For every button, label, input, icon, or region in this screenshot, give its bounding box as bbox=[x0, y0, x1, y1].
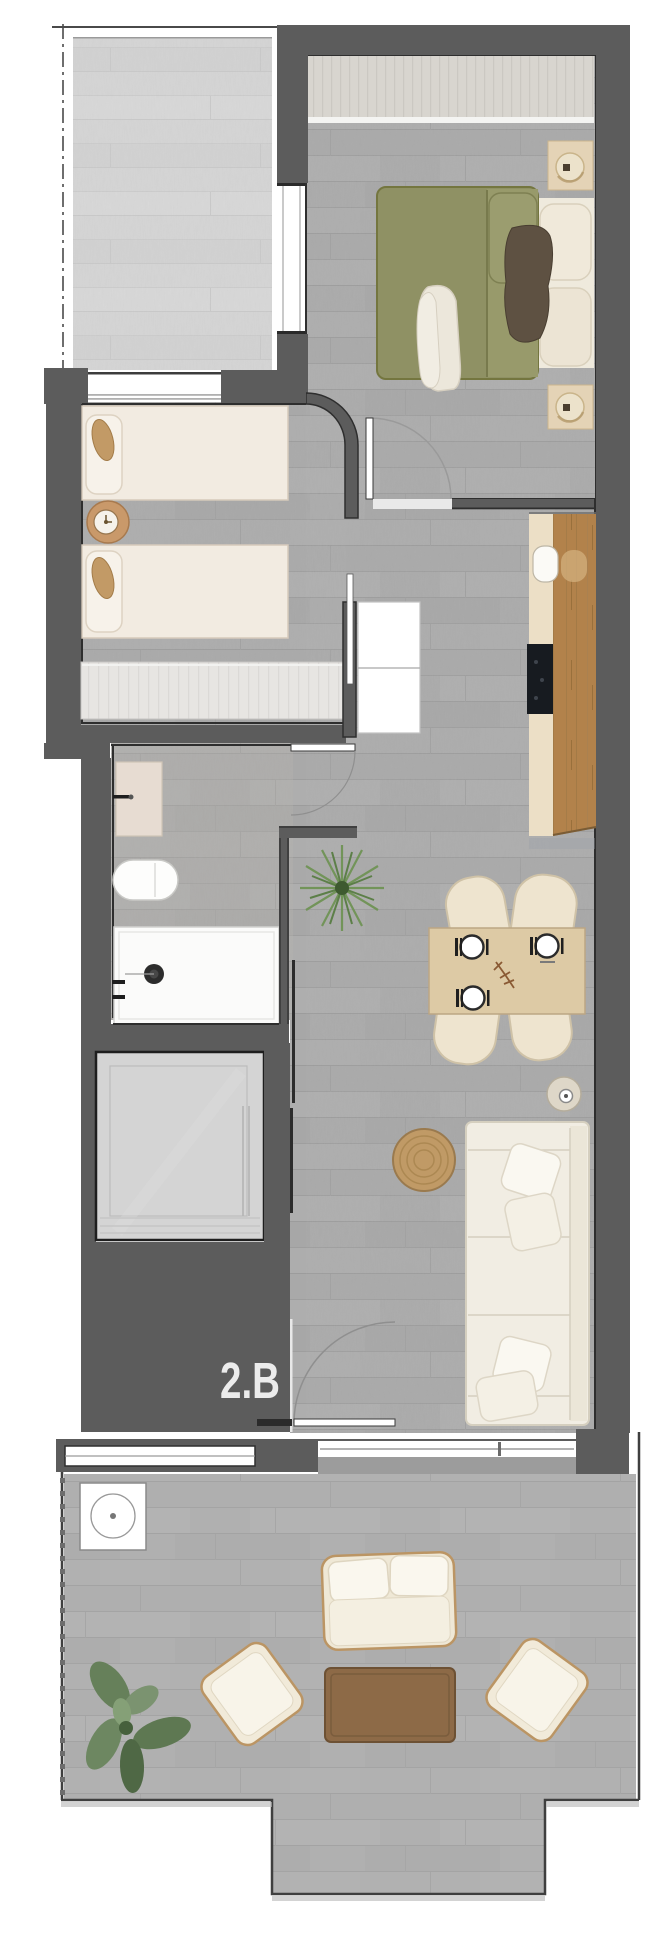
svg-text:2.B: 2.B bbox=[220, 1352, 280, 1409]
